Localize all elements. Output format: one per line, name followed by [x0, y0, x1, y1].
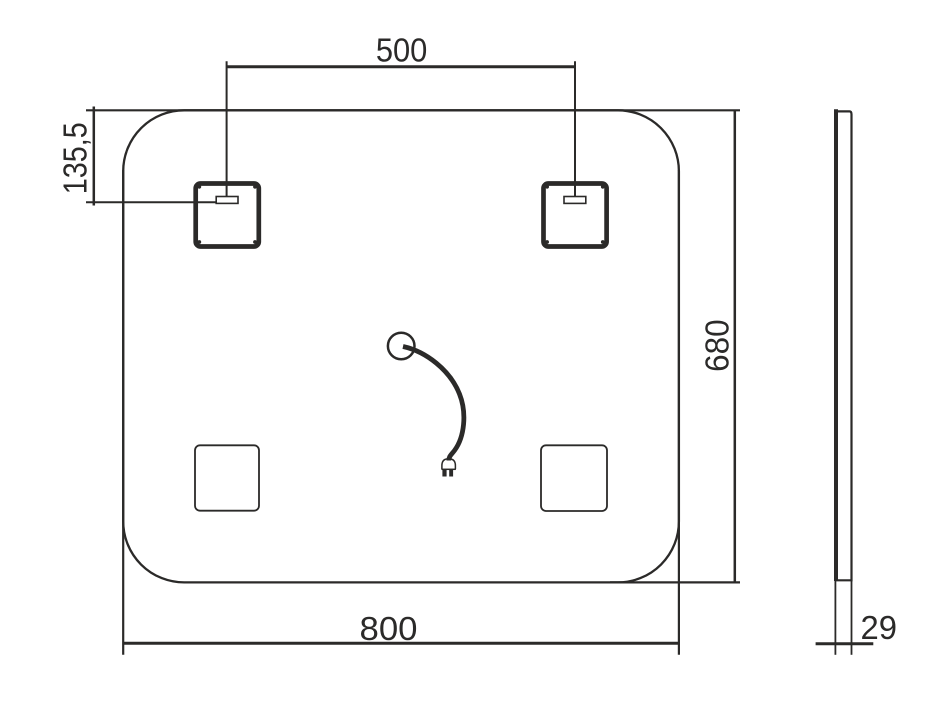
svg-text:29: 29	[861, 610, 898, 647]
svg-text:500: 500	[376, 33, 428, 70]
svg-text:800: 800	[360, 611, 418, 648]
svg-text:680: 680	[700, 319, 737, 372]
svg-text:135,5: 135,5	[58, 122, 95, 194]
